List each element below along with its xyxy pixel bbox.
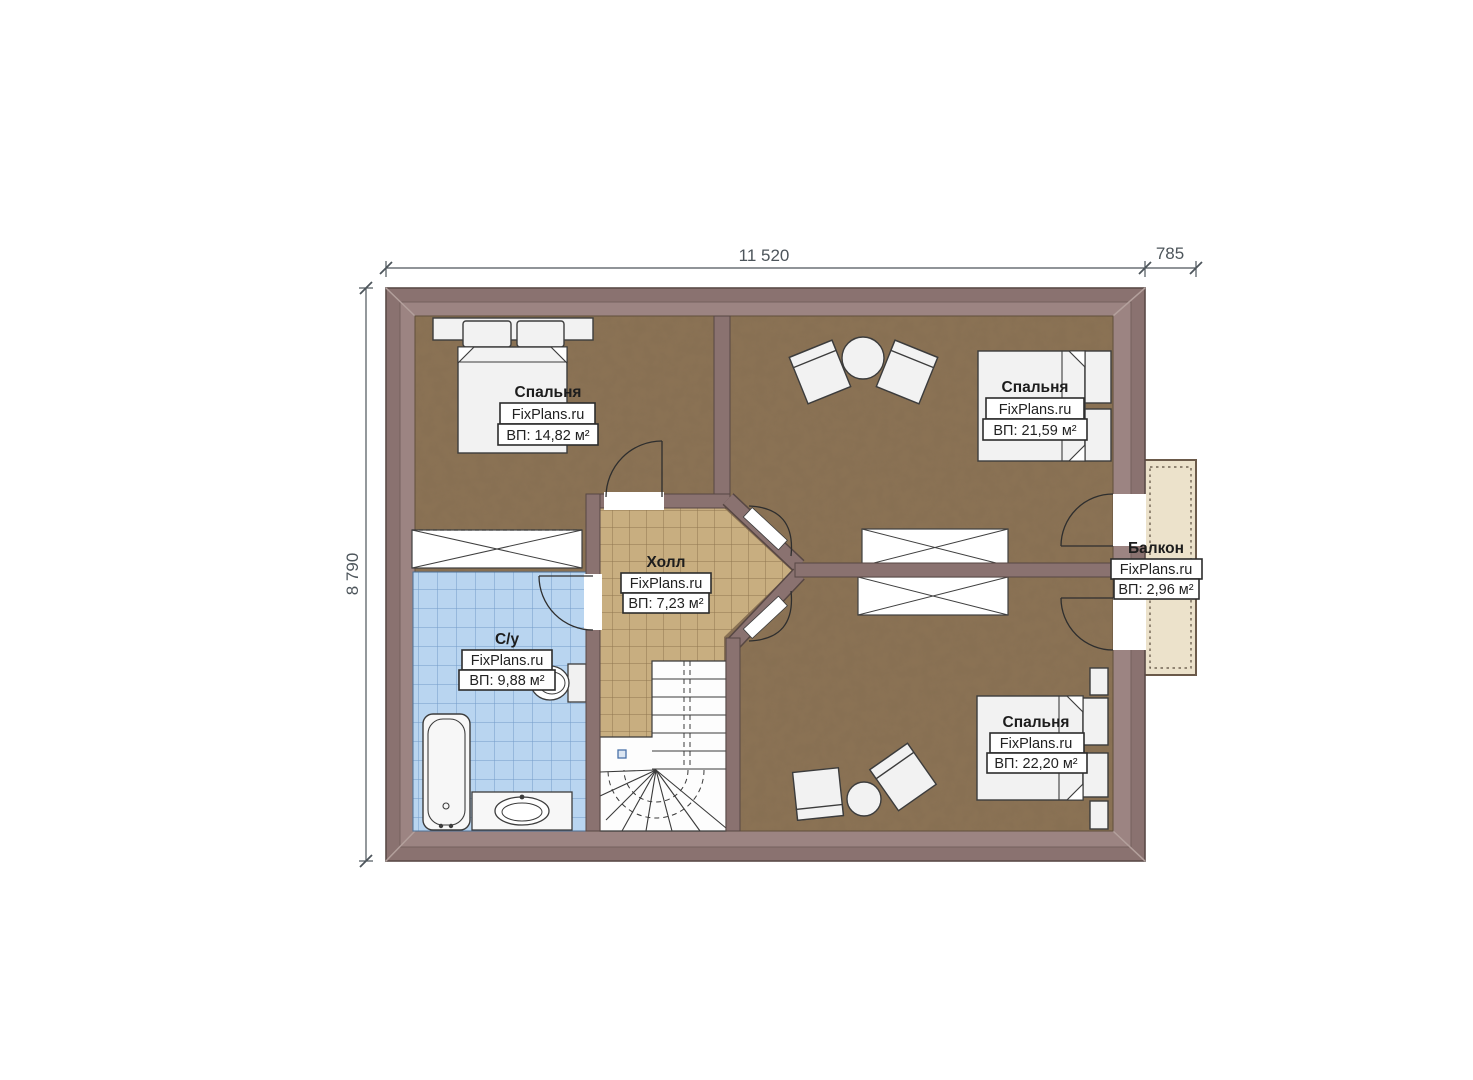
headboard-shelf <box>433 318 593 340</box>
wall-niche <box>1090 801 1108 829</box>
room-name: С/у <box>495 631 520 648</box>
watermark-text: FixPlans.ru <box>999 402 1072 418</box>
wall-stairs-right <box>726 638 740 831</box>
dim-width-label: 11 520 <box>739 246 790 265</box>
watermark-text: FixPlans.ru <box>471 653 544 669</box>
wall-bathroom <box>586 494 600 831</box>
wardrobe-icon <box>862 529 1008 566</box>
watermark-text: FixPlans.ru <box>630 576 703 592</box>
stair-post-marker <box>618 750 626 758</box>
balcony-door-opening <box>1113 598 1146 650</box>
room-name: Спальня <box>1003 714 1070 731</box>
dim-height-label: 8 790 <box>343 553 362 596</box>
nightstand-icon <box>1083 698 1108 745</box>
area-text: ВП: 14,82 м² <box>506 428 589 444</box>
area-text: ВП: 7,23 м² <box>628 596 703 612</box>
faucet-dot <box>449 824 453 828</box>
room-name: Спальня <box>1002 379 1069 396</box>
pillow <box>517 321 564 347</box>
room-name: Балкон <box>1128 540 1184 557</box>
area-text: ВП: 22,20 м² <box>994 756 1077 772</box>
wall-right-rooms-divider <box>795 563 1113 577</box>
dimension-left: 8 790 <box>343 282 373 867</box>
floor-plan-drawing: Спальня FixPlans.ru ВП: 14,82 м² Спальня… <box>0 0 1473 1080</box>
coffee-table-icon <box>847 782 881 816</box>
door-opening <box>604 492 664 510</box>
bathtub-icon <box>423 714 470 830</box>
wardrobe-icon <box>412 530 582 568</box>
area-text: ВП: 21,59 м² <box>993 423 1076 439</box>
watermark-text: FixPlans.ru <box>512 407 585 423</box>
balcony-door-opening <box>1113 494 1146 546</box>
room-name: Спальня <box>515 384 582 401</box>
watermark-text: FixPlans.ru <box>1000 736 1073 752</box>
wall-niche <box>1090 668 1108 695</box>
sink-vanity-icon <box>472 792 572 830</box>
dimension-top: 11 520 785 <box>380 244 1202 277</box>
coffee-table-icon <box>842 337 884 379</box>
faucet-dot <box>439 824 443 828</box>
faucet-dot <box>520 795 525 800</box>
wall-bedroom-divider <box>714 316 730 508</box>
room-name: Холл <box>647 554 686 571</box>
area-text: ВП: 9,88 м² <box>469 673 544 689</box>
armchair-icon <box>793 768 844 821</box>
nightstand-icon <box>1085 409 1111 461</box>
nightstand-icon <box>1085 351 1111 403</box>
pillow <box>463 321 511 347</box>
dim-balcony-label: 785 <box>1156 244 1184 263</box>
floor-plan-page: Спальня FixPlans.ru ВП: 14,82 м² Спальня… <box>0 0 1473 1080</box>
watermark-text: FixPlans.ru <box>1120 562 1193 578</box>
door-opening <box>584 574 602 630</box>
wardrobe-icon <box>858 577 1008 615</box>
area-text: ВП: 2,96 м² <box>1118 582 1193 598</box>
